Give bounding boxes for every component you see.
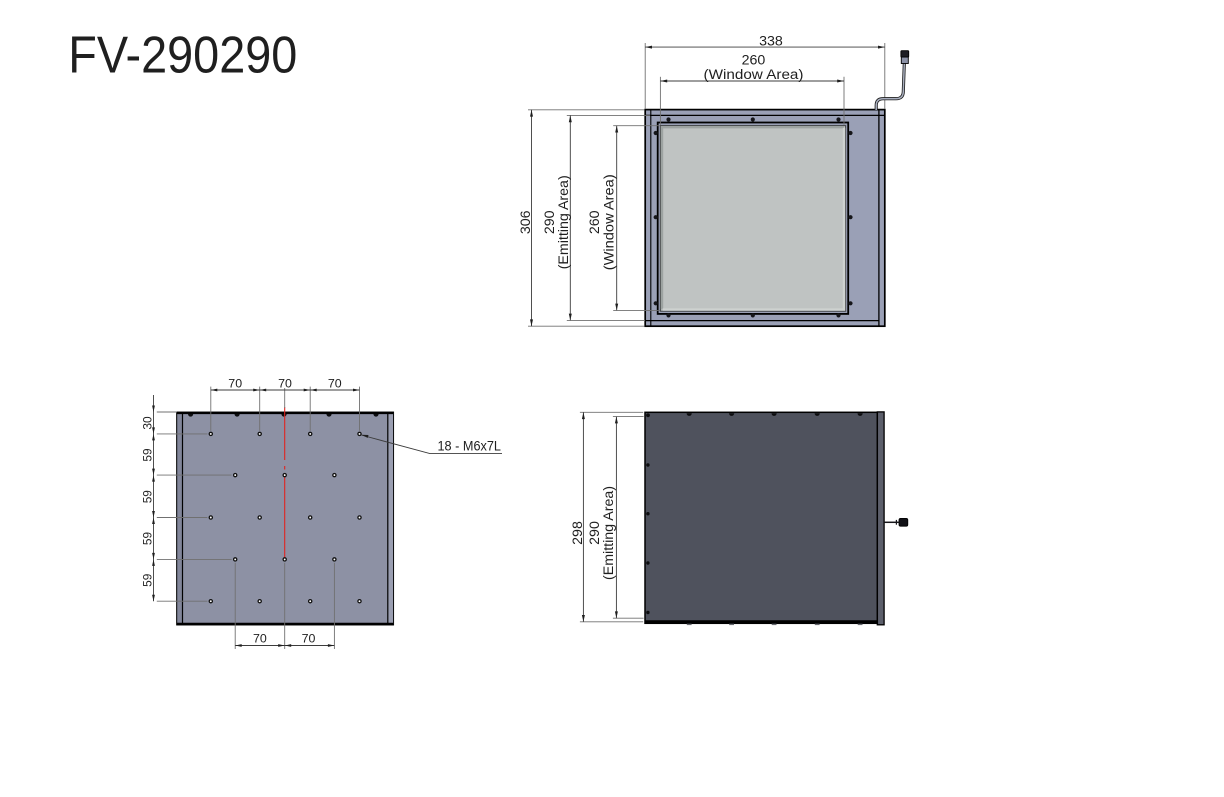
svg-text:(Emitting Area): (Emitting Area)	[556, 175, 572, 269]
svg-text:(Window Area): (Window Area)	[602, 174, 618, 270]
svg-text:FV-290290: FV-290290	[68, 26, 297, 84]
svg-text:59: 59	[140, 532, 154, 546]
svg-text:(Emitting Area): (Emitting Area)	[601, 486, 617, 580]
svg-text:306: 306	[518, 210, 534, 234]
svg-text:59: 59	[140, 448, 154, 462]
svg-text:59: 59	[140, 573, 154, 587]
svg-text:30: 30	[140, 416, 154, 430]
svg-text:70: 70	[328, 376, 342, 390]
svg-text:(Window Area): (Window Area)	[704, 67, 804, 83]
svg-text:338: 338	[759, 33, 783, 49]
svg-text:260: 260	[587, 210, 603, 234]
svg-text:70: 70	[228, 376, 242, 390]
svg-text:70: 70	[302, 632, 316, 646]
svg-text:70: 70	[253, 632, 267, 646]
svg-text:298: 298	[570, 521, 586, 545]
svg-text:70: 70	[278, 376, 292, 390]
svg-text:59: 59	[140, 490, 154, 504]
svg-text:18 - M6x7L: 18 - M6x7L	[438, 439, 502, 454]
